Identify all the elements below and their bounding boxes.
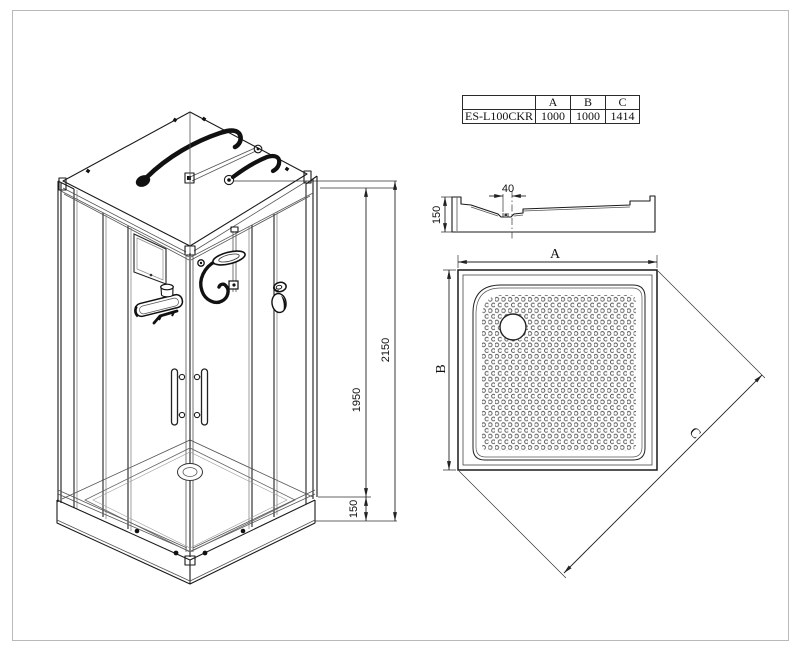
drain-iso — [178, 464, 203, 481]
spec-model: ES-L100CKR — [463, 110, 536, 124]
dim-label-C: C — [686, 425, 703, 442]
mixer-valve — [271, 281, 288, 313]
spec-table-data-row: ES-L100CKR 1000 1000 1414 — [463, 110, 640, 124]
support-rod — [190, 148, 256, 181]
spec-value-a: 1000 — [536, 110, 571, 124]
dim-label-1950: 1950 — [351, 388, 363, 412]
door-handle-left — [172, 369, 185, 425]
right-post — [306, 176, 317, 499]
wall-outlet-dot — [200, 262, 202, 264]
spec-table-header-row: A B C — [463, 96, 640, 110]
spec-header-a: A — [536, 96, 571, 110]
shower-hose-small — [233, 156, 279, 177]
dim-label-A: A — [550, 247, 561, 262]
drawing-canvas: 1950 150 2150 40 150 — [0, 0, 800, 648]
section-inner-lines — [457, 197, 630, 231]
spec-value-b: 1000 — [571, 110, 606, 124]
isometric-view: 1950 150 2150 — [57, 112, 397, 584]
dim-label-40: 40 — [502, 183, 514, 195]
spec-header-b: B — [571, 96, 606, 110]
roof-rim — [63, 181, 307, 252]
hand-shower-hose — [201, 261, 228, 302]
cup — [161, 284, 174, 297]
hose-connector-dot — [227, 178, 231, 182]
plan-view: A B C — [434, 247, 765, 578]
spec-table: A B C ES-L100CKR 1000 1000 1414 — [462, 95, 640, 124]
technical-drawing-page: 1950 150 2150 40 150 — [0, 0, 800, 648]
dim-label-150-section: 150 — [431, 206, 443, 224]
dim-label-B: B — [434, 364, 449, 373]
hand-shower-head — [212, 248, 247, 267]
drain-section-plug — [505, 214, 508, 217]
shower-hose-large — [146, 131, 241, 178]
left-post — [58, 181, 74, 503]
door-handle-right — [194, 369, 207, 425]
mirror — [134, 234, 166, 284]
rail-slider-knob — [232, 283, 235, 286]
section-view: 40 150 — [431, 183, 655, 239]
dim-label-150-iso: 150 — [348, 500, 360, 518]
rod-end-dot — [257, 148, 260, 151]
spec-header-c: C — [606, 96, 640, 110]
spec-header-model — [463, 96, 536, 110]
spec-value-c: 1414 — [606, 110, 640, 124]
drain-plan — [500, 314, 526, 340]
shower-column — [198, 227, 247, 302]
dim-label-2150: 2150 — [380, 338, 392, 362]
tray-section-profile — [452, 196, 655, 232]
iso-dimensions: 1950 150 2150 — [233, 181, 397, 521]
top-track — [61, 191, 313, 260]
